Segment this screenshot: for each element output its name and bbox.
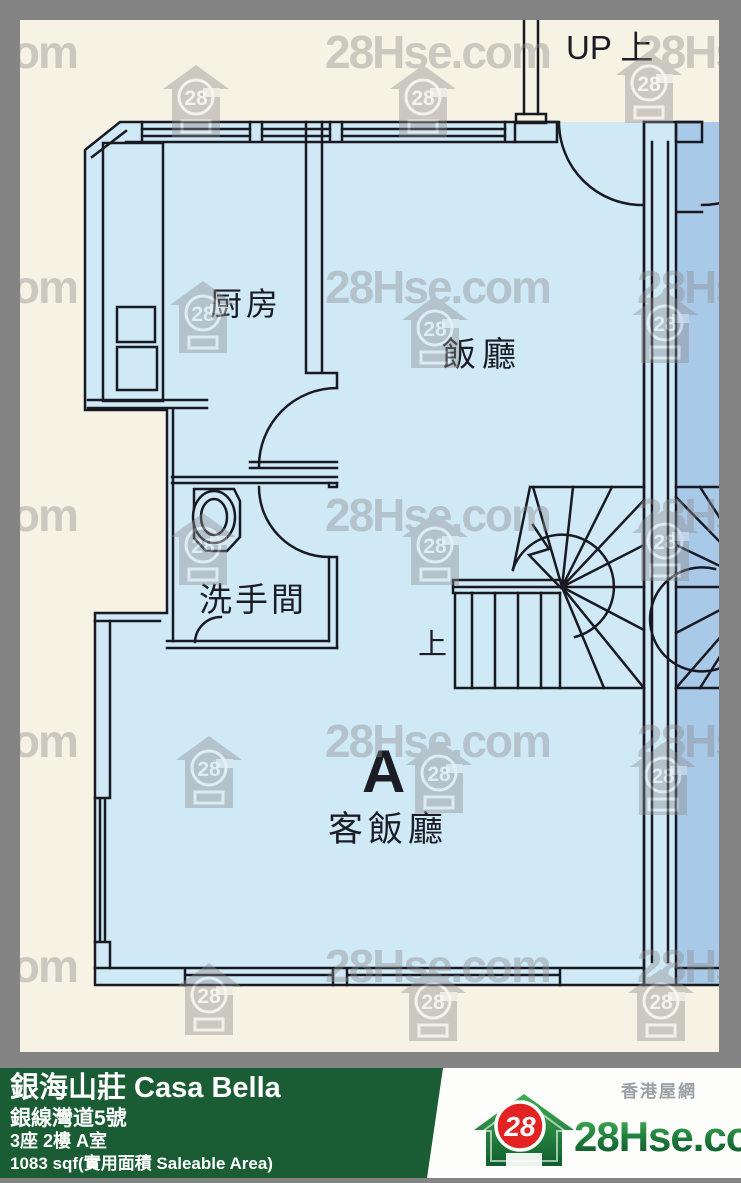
label-living-dining: 客飯廳 <box>328 810 448 849</box>
label-toilet: 洗手間 <box>199 581 307 618</box>
saleable-area: 1083 sqf(實用面積 Saleable Area) <box>10 1155 273 1172</box>
unit-info: 3座 2樓 A室 <box>10 1132 107 1150</box>
floorplan-svg: 28 <box>0 0 741 1178</box>
svg-text:28: 28 <box>503 1111 536 1142</box>
svg-text:28Hse.com: 28Hse.com <box>325 26 550 78</box>
28hse-logo-icon: 28 <box>474 1092 574 1168</box>
floorplan-page: 28 <box>0 0 741 1178</box>
logo-tagline: 香港屋網 <box>621 1077 697 1102</box>
estate-address: 銀線灣道5號 <box>10 1108 127 1129</box>
estate-name: 銀海山莊 Casa Bella <box>10 1074 281 1103</box>
label-stair-up: 上 <box>418 629 447 661</box>
property-info-bar: 銀海山莊 Casa Bella 銀線灣道5號 3座 2樓 A室 1083 sqf… <box>0 1068 741 1178</box>
unit-a-fill <box>85 122 644 985</box>
28hse-logo-text: 28Hse.com <box>574 1116 741 1158</box>
